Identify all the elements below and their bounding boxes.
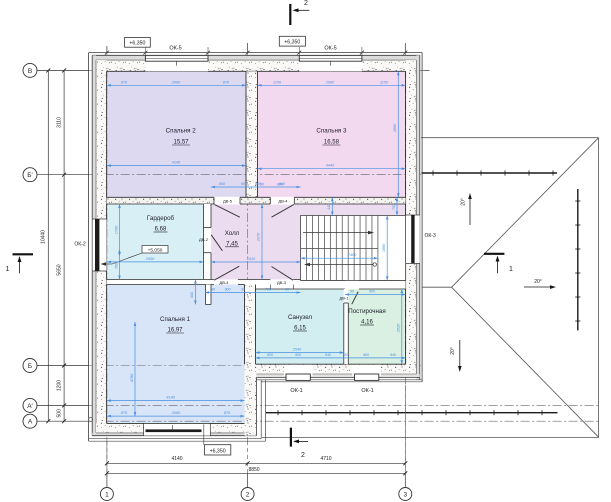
svg-text:4140: 4140 — [172, 161, 181, 165]
svg-text:870: 870 — [121, 411, 128, 415]
svg-text:+5,050: +5,050 — [148, 247, 163, 253]
svg-text:16,58: 16,58 — [324, 140, 340, 146]
svg-text:2950: 2950 — [145, 257, 155, 261]
svg-text:20°: 20° — [450, 347, 456, 355]
svg-text:2: 2 — [304, 0, 308, 7]
svg-text:Санузел: Санузел — [288, 314, 312, 321]
svg-text:+6,350: +6,350 — [129, 41, 145, 47]
svg-text:1: 1 — [6, 266, 10, 273]
svg-text:900: 900 — [225, 288, 231, 292]
svg-text:Спальня 1: Спальня 1 — [160, 316, 191, 323]
svg-text:В: В — [28, 68, 32, 75]
svg-text:ДВ-4: ДВ-4 — [220, 280, 230, 285]
svg-text:2620: 2620 — [397, 323, 401, 333]
svg-text:ОК-5: ОК-5 — [169, 45, 181, 51]
svg-text:7,45: 7,45 — [226, 241, 238, 247]
svg-text:4,16: 4,16 — [361, 320, 373, 326]
svg-text:900: 900 — [369, 290, 375, 294]
svg-text:Спальня 2: Спальня 2 — [166, 128, 197, 135]
svg-text:90: 90 — [260, 182, 264, 186]
svg-text:6,15: 6,15 — [294, 326, 306, 332]
svg-text:1: 1 — [509, 266, 513, 273]
svg-text:90: 90 — [285, 288, 289, 292]
svg-text:1200: 1200 — [57, 380, 63, 391]
svg-text:2: 2 — [301, 452, 305, 459]
svg-text:ОК-1: ОК-1 — [361, 388, 373, 394]
svg-text:760: 760 — [114, 262, 118, 269]
svg-text:ОК-2: ОК-2 — [74, 242, 85, 248]
svg-text:ОК-5: ОК-5 — [324, 45, 336, 51]
svg-text:ДВ-1: ДВ-1 — [340, 296, 350, 301]
svg-text:870: 870 — [121, 80, 128, 84]
svg-text:2410: 2410 — [246, 257, 256, 261]
svg-text:440: 440 — [327, 204, 331, 210]
svg-text:2060: 2060 — [325, 80, 335, 84]
svg-text:1890: 1890 — [382, 243, 386, 252]
svg-text:600: 600 — [190, 292, 194, 298]
svg-text:10440: 10440 — [41, 230, 47, 244]
svg-text:2: 2 — [246, 491, 250, 498]
svg-text:ДВ-3: ДВ-3 — [277, 280, 287, 285]
svg-text:90: 90 — [241, 182, 245, 186]
svg-text:750: 750 — [392, 204, 396, 210]
svg-text:4790: 4790 — [130, 373, 134, 382]
svg-text:4140: 4140 — [166, 396, 175, 400]
svg-text:16,97: 16,97 — [167, 328, 183, 334]
svg-text:4140: 4140 — [171, 456, 182, 462]
svg-text:20°: 20° — [534, 279, 542, 285]
svg-text:2060: 2060 — [171, 80, 181, 84]
svg-text:2270: 2270 — [257, 232, 261, 242]
svg-text:3: 3 — [403, 491, 407, 498]
svg-text:Гардероб: Гардероб — [147, 215, 175, 222]
svg-text:90: 90 — [344, 353, 348, 357]
svg-text:1: 1 — [105, 491, 109, 498]
svg-text:8850: 8850 — [248, 467, 259, 473]
svg-text:20°: 20° — [461, 198, 467, 206]
svg-text:Холл: Холл — [225, 230, 240, 237]
svg-text:Б: Б — [28, 363, 32, 370]
svg-text:840: 840 — [325, 353, 331, 357]
svg-text:90: 90 — [241, 288, 245, 292]
svg-text:2060: 2060 — [171, 411, 181, 415]
svg-text:ДВ-4: ДВ-4 — [279, 199, 289, 204]
svg-text:500: 500 — [57, 409, 63, 418]
svg-text:А: А — [28, 419, 33, 426]
svg-text:90: 90 — [350, 290, 354, 294]
svg-text:900: 900 — [277, 182, 283, 186]
svg-text:700: 700 — [265, 288, 271, 292]
svg-text:1150: 1150 — [273, 80, 282, 84]
svg-text:Постирочная: Постирочная — [348, 308, 385, 315]
svg-text:3110: 3110 — [57, 117, 63, 128]
svg-text:Б': Б' — [27, 172, 33, 179]
svg-text:870: 870 — [224, 411, 231, 415]
svg-text:940: 940 — [390, 353, 396, 357]
svg-text:А': А' — [27, 403, 33, 410]
svg-text:5650: 5650 — [57, 264, 63, 275]
svg-text:2400: 2400 — [347, 253, 357, 257]
svg-text:4710: 4710 — [320, 456, 331, 462]
svg-text:ОК-3: ОК-3 — [425, 233, 436, 239]
svg-text:900: 900 — [363, 353, 369, 357]
svg-text:1150: 1150 — [380, 80, 389, 84]
svg-text:Спальня 3: Спальня 3 — [316, 128, 347, 135]
svg-text:15,57: 15,57 — [173, 140, 189, 146]
svg-text:870: 870 — [223, 80, 230, 84]
svg-text:+6,350: +6,350 — [210, 448, 226, 454]
svg-text:1700: 1700 — [114, 225, 118, 234]
svg-text:800: 800 — [267, 353, 273, 357]
svg-text:4440: 4440 — [326, 164, 335, 168]
svg-text:ДВ-5: ДВ-5 — [223, 199, 233, 204]
svg-text:900: 900 — [295, 353, 301, 357]
svg-text:2540: 2540 — [292, 348, 302, 352]
svg-text:ДВ-2: ДВ-2 — [199, 237, 209, 242]
svg-text:+6,350: +6,350 — [284, 40, 300, 46]
svg-text:ОК-1: ОК-1 — [290, 388, 302, 394]
svg-text:6,68: 6,68 — [155, 227, 167, 233]
svg-text:900: 900 — [219, 182, 225, 186]
svg-text:2860: 2860 — [393, 123, 397, 133]
svg-text:90: 90 — [211, 288, 215, 292]
